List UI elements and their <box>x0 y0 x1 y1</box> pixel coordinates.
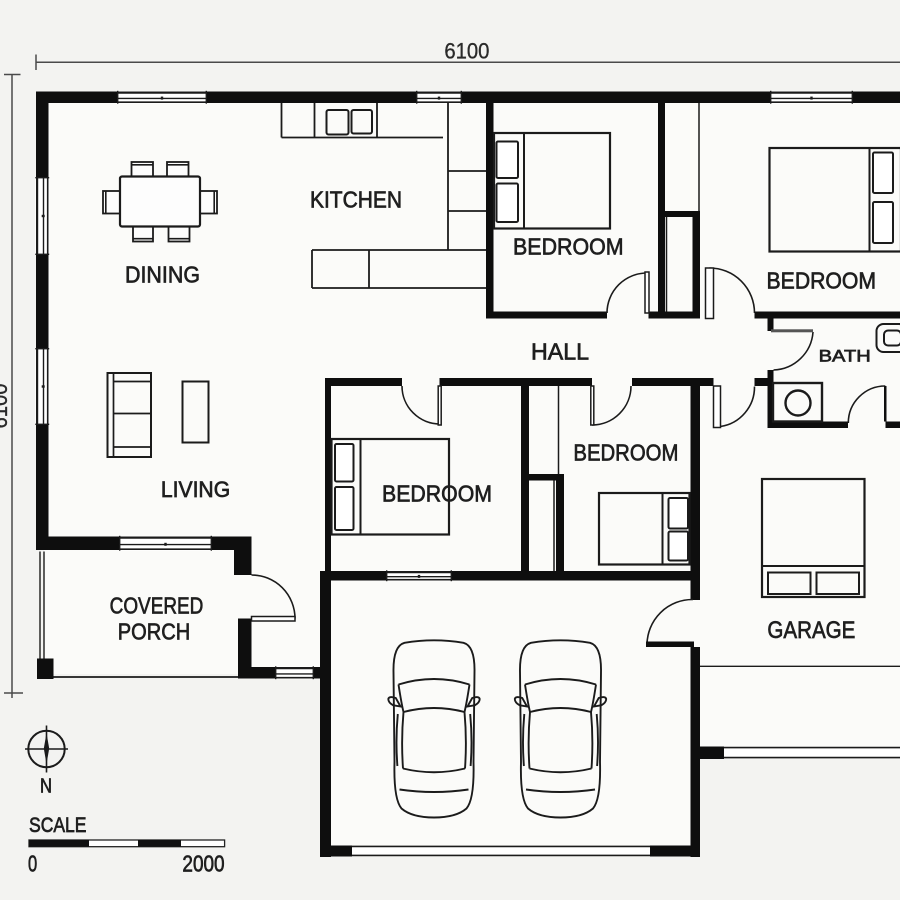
svg-text:DINING: DINING <box>125 262 200 288</box>
svg-text:KITCHEN: KITCHEN <box>310 186 402 212</box>
svg-text:BEDROOM: BEDROOM <box>513 234 624 260</box>
svg-text:BEDROOM: BEDROOM <box>382 481 492 507</box>
svg-text:SCALE: SCALE <box>29 814 87 837</box>
svg-text:PORCH: PORCH <box>118 619 190 645</box>
svg-text:6100: 6100 <box>0 383 12 428</box>
svg-text:GARAGE: GARAGE <box>767 617 855 644</box>
svg-text:HALL: HALL <box>531 339 589 365</box>
svg-text:0: 0 <box>28 850 37 876</box>
svg-text:COVERED: COVERED <box>110 593 204 619</box>
svg-text:BEDROOM: BEDROOM <box>767 268 877 294</box>
svg-text:2000: 2000 <box>182 850 224 876</box>
svg-text:N: N <box>40 775 52 797</box>
svg-text:BATH: BATH <box>819 346 871 365</box>
svg-text:BEDROOM: BEDROOM <box>573 439 678 465</box>
svg-text:LIVING: LIVING <box>161 477 230 502</box>
svg-text:6100: 6100 <box>444 38 489 63</box>
